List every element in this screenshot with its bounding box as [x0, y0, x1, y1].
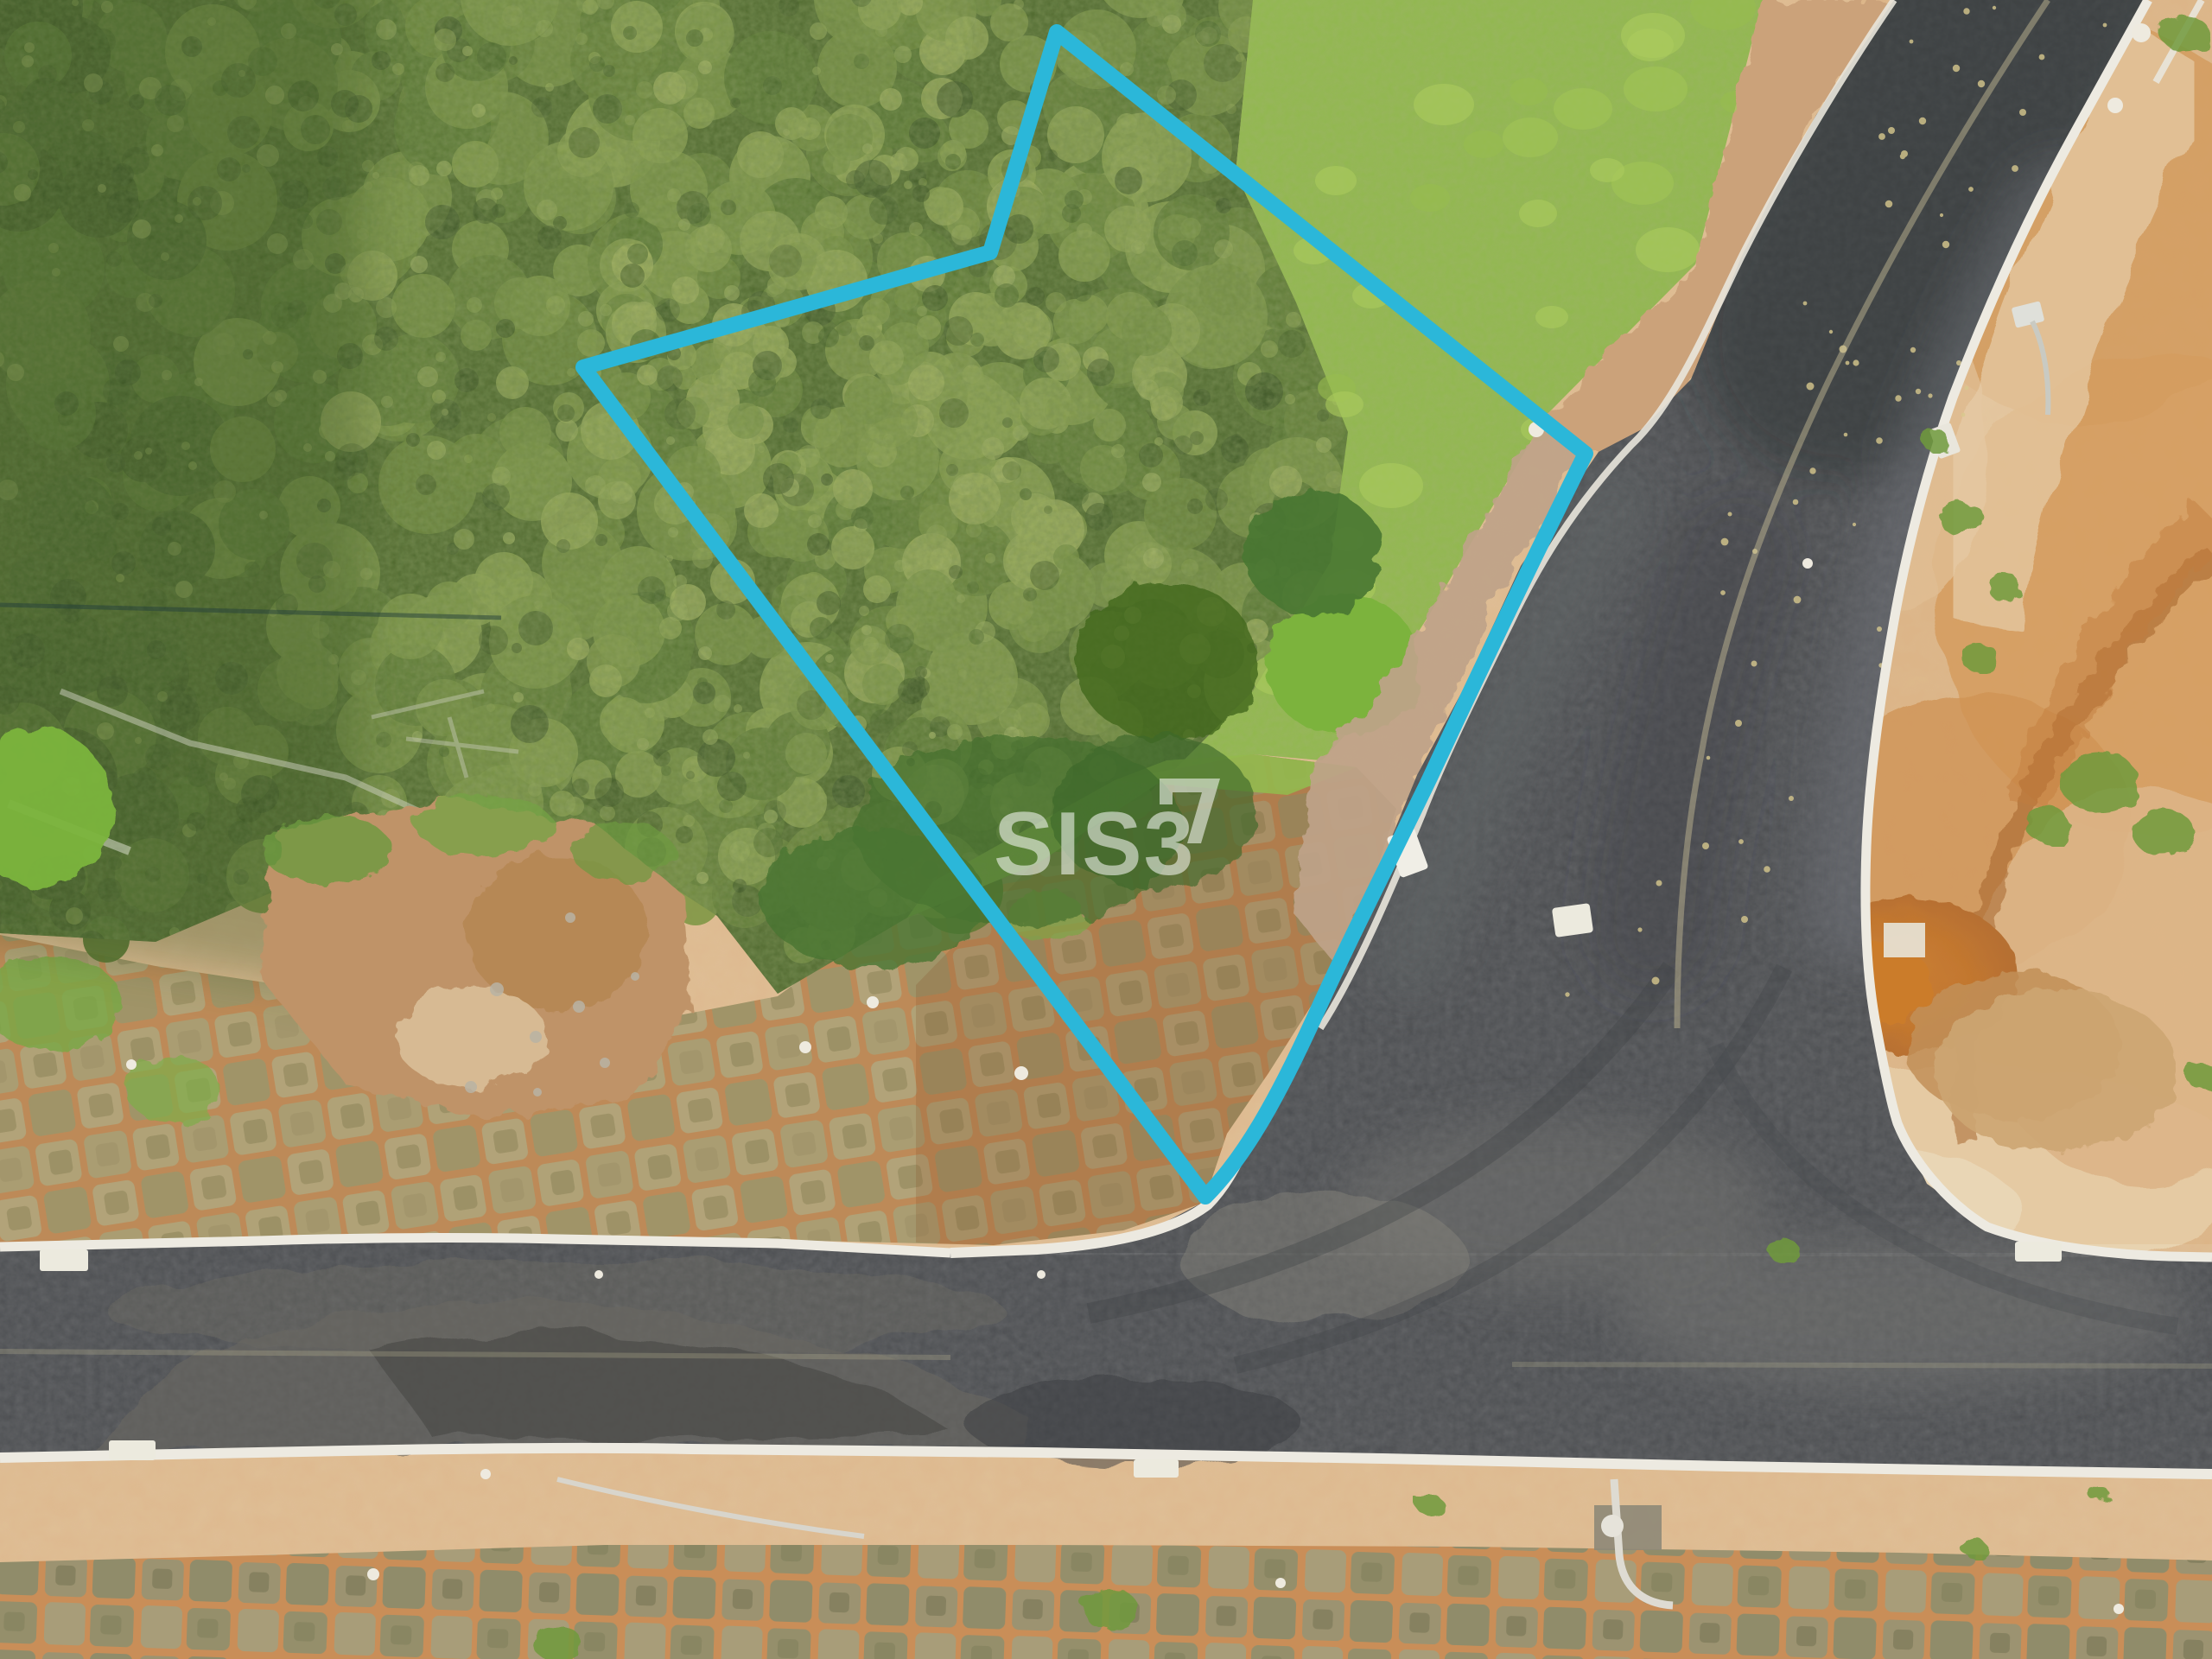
svg-text:SIS3: SIS3 — [994, 794, 1195, 894]
